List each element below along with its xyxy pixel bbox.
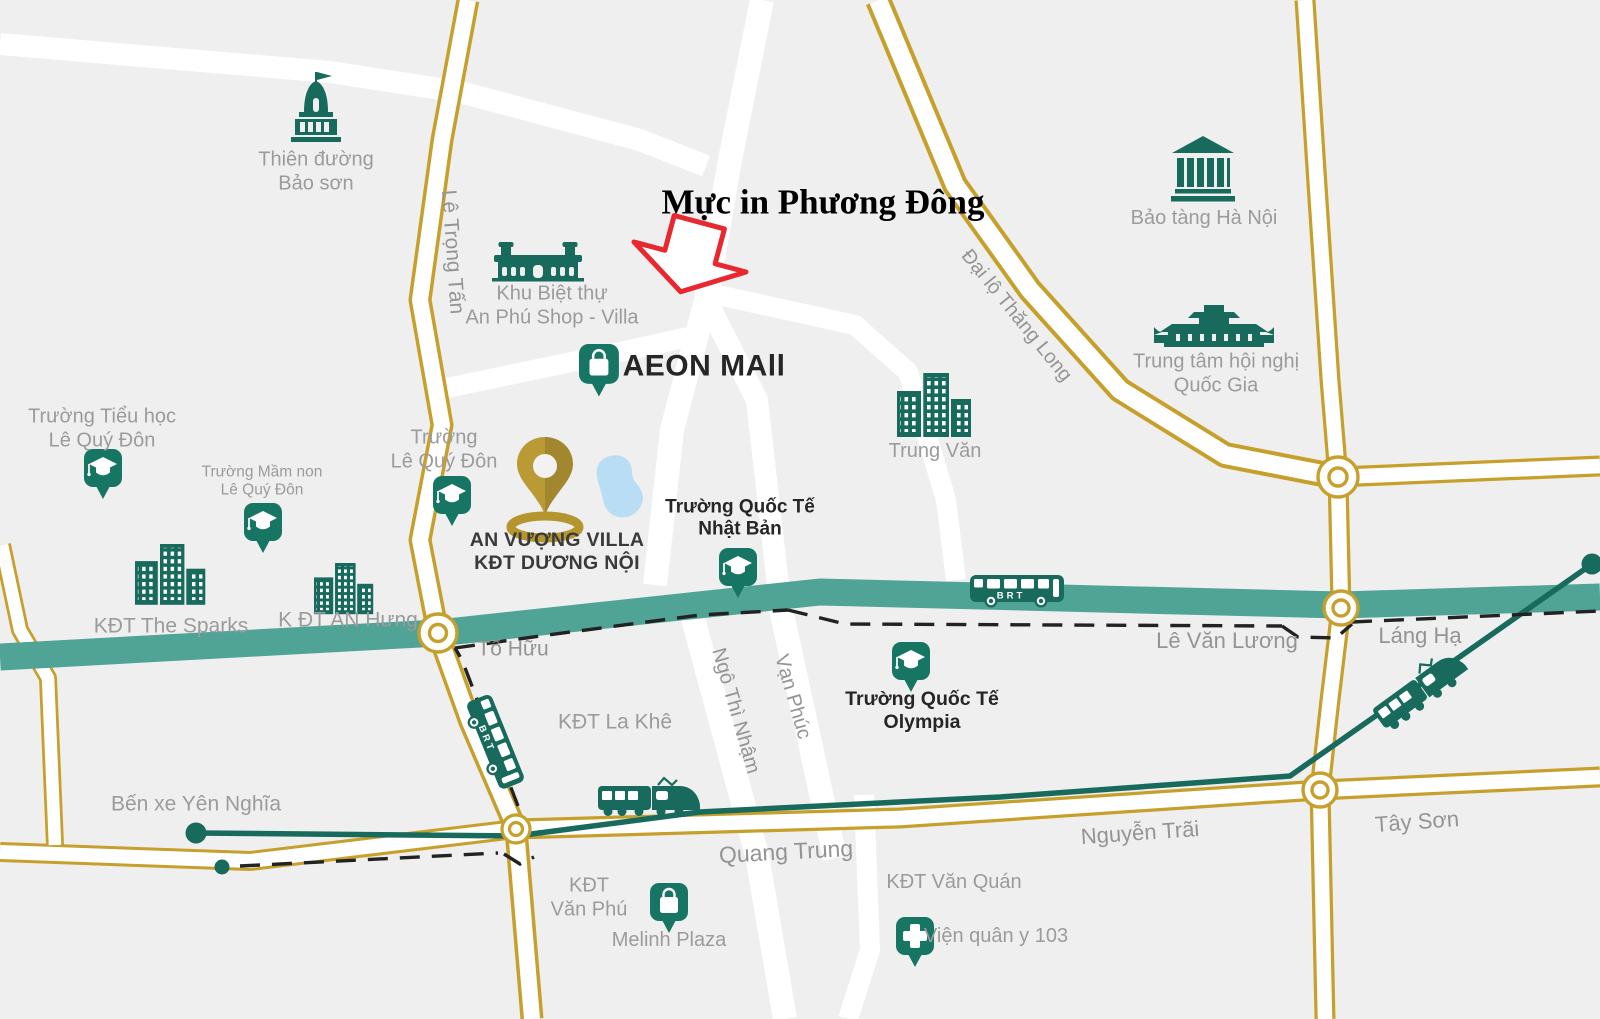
label-vien-quan-y-103: Viện quân y 103 (924, 925, 1068, 949)
roundabout (502, 815, 530, 843)
label-ben-xe-yen-nghia: Bến xe Yên Nghĩa (111, 793, 281, 818)
road-label-to-huu: Tố Hữu (477, 638, 548, 663)
label-an-vuong-villa: AN VƯỢNG VILLA KĐT DƯƠNG NỘI (470, 529, 645, 575)
label-kdt-van-phu: KĐT Văn Phú (551, 874, 628, 921)
label-kdt-van-quan: KĐT Văn Quán (886, 871, 1021, 895)
label-truong-tieu-hoc: Trường Tiểu học Lê Quý Đôn (28, 405, 176, 452)
label-kdt-the-sparks: KĐT The Sparks (94, 615, 248, 640)
label-trung-tam-hoi-nghi: Trung tâm hội nghị Quốc Gia (1133, 350, 1299, 397)
roundabout (419, 614, 457, 652)
label-aeon-mall: AEON MAll (623, 348, 786, 383)
brt-route-dot (215, 860, 230, 875)
map-annotation-title: Mực in Phương Đông (662, 181, 985, 222)
label-khu-biet-thu: Khu Biệt thự An Phú Shop - Villa (465, 282, 638, 329)
map: BRT BRT Mực in Phương Đông Thiên đường B… (0, 0, 1600, 1019)
roundabout (1324, 591, 1358, 625)
label-bao-tang-ha-noi: Bảo tàng Hà Nội (1131, 207, 1278, 231)
road-label-lang-ha: Láng Hạ (1378, 623, 1461, 649)
metro-terminus-dot (186, 823, 207, 844)
label-truong-mam-non: Trường Mầm non Lê Quý Đôn (202, 464, 323, 501)
label-truong-le-quy-don: Trường Lê Quý Đôn (391, 426, 498, 473)
roundabout (1303, 773, 1337, 807)
label-kdt-la-khe: KĐT La Khê (558, 711, 672, 736)
label-melinh-plaza: Melinh Plaza (612, 929, 727, 953)
roundabout (1318, 457, 1358, 497)
label-truong-quoc-te-nhat-ban: Trường Quốc Tế Nhật Bản (665, 497, 815, 542)
label-kdt-an-hung: K ĐT AN Hưng (278, 609, 418, 634)
label-thien-duong-bao-son: Thiên đường Bảo sơn (258, 148, 373, 195)
svg-text:BRT: BRT (997, 591, 1026, 602)
label-truong-quoc-te-olympia: Trường Quốc Tế Olympia (845, 688, 999, 734)
road-label-le-van-luong: Lê Văn Lương (1156, 628, 1298, 654)
label-trung-van: Trung Văn (889, 440, 982, 464)
